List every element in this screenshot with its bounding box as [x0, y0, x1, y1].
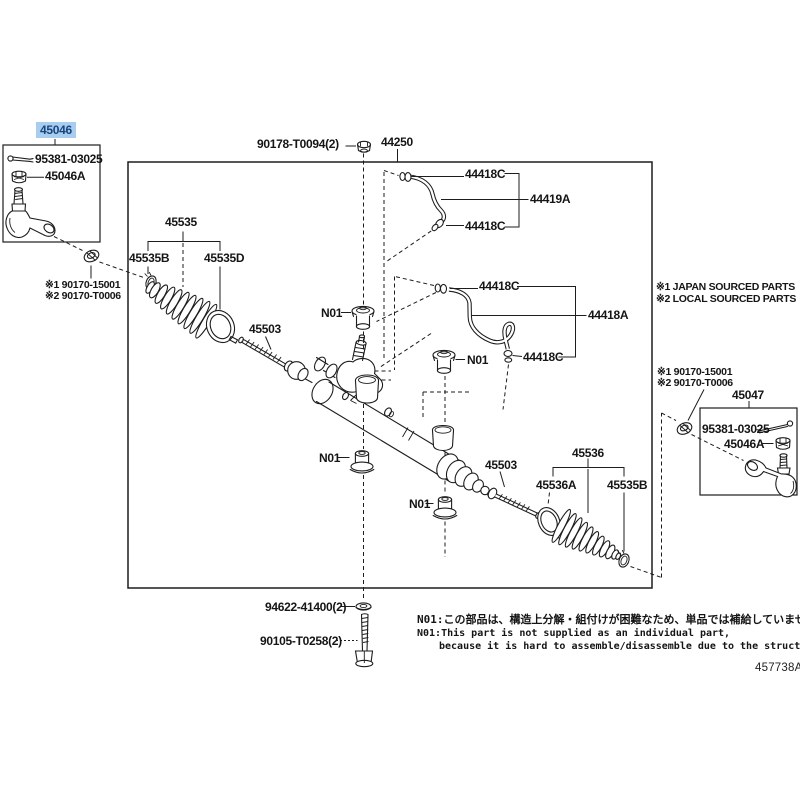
callout-jam-nut-left-1[interactable]: ※1 90170-15001 [45, 280, 120, 291]
callout-jam-nut-right-1[interactable]: ※1 90170-15001 [657, 367, 732, 378]
callout-boot-right-clip[interactable]: 45536A [536, 479, 576, 491]
callout-castle-nut-left[interactable]: 45046A [45, 170, 85, 182]
jam-nut-left-drawing [82, 248, 100, 264]
footnote-english-line2: because it is hard to assemble/disassemb… [439, 642, 800, 652]
callout-pinion-nut[interactable]: 90178-T0094(2) [257, 138, 339, 150]
note-japan-sourced: ※1 JAPAN SOURCED PARTS [656, 282, 795, 293]
inner-tie-rod-left-drawing [238, 336, 312, 382]
figure-number: 457738A [755, 662, 800, 674]
callout-jam-nut-left-2[interactable]: ※2 90170-T0006 [45, 291, 121, 302]
callout-boot-left[interactable]: 45535 [165, 216, 197, 228]
washer-drawing [356, 603, 371, 610]
castle-nut-left-icon [12, 171, 26, 183]
note-local-sourced: ※2 LOCAL SOURCED PARTS [656, 294, 796, 305]
pinion-nut-drawing [358, 141, 371, 152]
callout-tube2[interactable]: 44418A [588, 309, 628, 321]
callout-tie-rod-end-right[interactable]: 45047 [732, 389, 764, 401]
callout-gear-assembly[interactable]: 44250 [381, 136, 413, 148]
callout-boot-right-clamp[interactable]: 45535B [607, 479, 647, 491]
grommet-drawing-1 [352, 306, 374, 329]
callout-cotter-pin-right[interactable]: 95381-03025 [702, 423, 769, 435]
footnote-english-line1: N01:This part is not supplied as an indi… [417, 629, 730, 639]
callout-45046-selected[interactable]: 45046 [36, 122, 76, 138]
callout-grommet-1[interactable]: N01 [321, 307, 342, 319]
leader-lines [27, 139, 774, 641]
callout-grommet-3[interactable]: N01 [319, 452, 340, 464]
callout-tie-rod-right[interactable]: 45503 [485, 459, 517, 471]
callout-tie-rod-left[interactable]: 45503 [249, 323, 281, 335]
tie-rod-end-right-drawing [745, 454, 796, 497]
pressure-tube-1-drawing [400, 173, 445, 232]
cotter-pin-left-icon [8, 156, 33, 162]
callout-bolt[interactable]: 90105-T0258(2) [260, 635, 342, 647]
grommet-drawing-4 [433, 497, 457, 519]
callout-tube1[interactable]: 44419A [530, 193, 570, 205]
parts-diagram-art [0, 0, 800, 800]
callout-boot-right[interactable]: 45536 [572, 447, 604, 459]
footnote-japanese: N01:この部品は、構造上分解・組付けが困難なため、単品では補給していません [417, 614, 800, 625]
boot-right-drawing [550, 508, 629, 573]
castle-nut-right-icon [776, 438, 790, 450]
jam-nut-right-drawing [675, 420, 693, 436]
callout-jam-nut-right-2[interactable]: ※2 90170-T0006 [657, 378, 733, 389]
callout-boot-left-clamp[interactable]: 45535B [129, 252, 169, 264]
grommet-drawing-2 [433, 350, 455, 373]
callout-tube1-clamp-bottom[interactable]: 44418C [465, 220, 505, 232]
callout-tube2-clamp-bottom[interactable]: 44418C [523, 351, 563, 363]
callout-tube2-clamp-top[interactable]: 44418C [479, 280, 519, 292]
callout-castle-nut-right[interactable]: 45046A [724, 438, 764, 450]
callout-washer[interactable]: 94622-41400(2) [265, 601, 346, 613]
bolt-drawing [356, 614, 373, 667]
dashed-construction-lines [54, 154, 744, 601]
callout-tube1-clamp-top[interactable]: 44418C [465, 168, 505, 180]
callout-cotter-pin-left[interactable]: 95381-03025 [35, 153, 102, 165]
callout-grommet-4[interactable]: N01 [409, 498, 430, 510]
inner-tie-rod-right-drawing [487, 487, 542, 519]
callout-grommet-2[interactable]: N01 [467, 354, 488, 366]
grommet-drawing-3 [350, 451, 374, 473]
tie-rod-end-left-drawing [6, 188, 56, 238]
callout-boot-left-clip[interactable]: 45535D [204, 252, 244, 264]
boot-right-clamp-drawing [617, 550, 631, 569]
parts-diagram-canvas: 45046 95381-03025 45046A ※1 90170-15001 … [0, 0, 800, 800]
